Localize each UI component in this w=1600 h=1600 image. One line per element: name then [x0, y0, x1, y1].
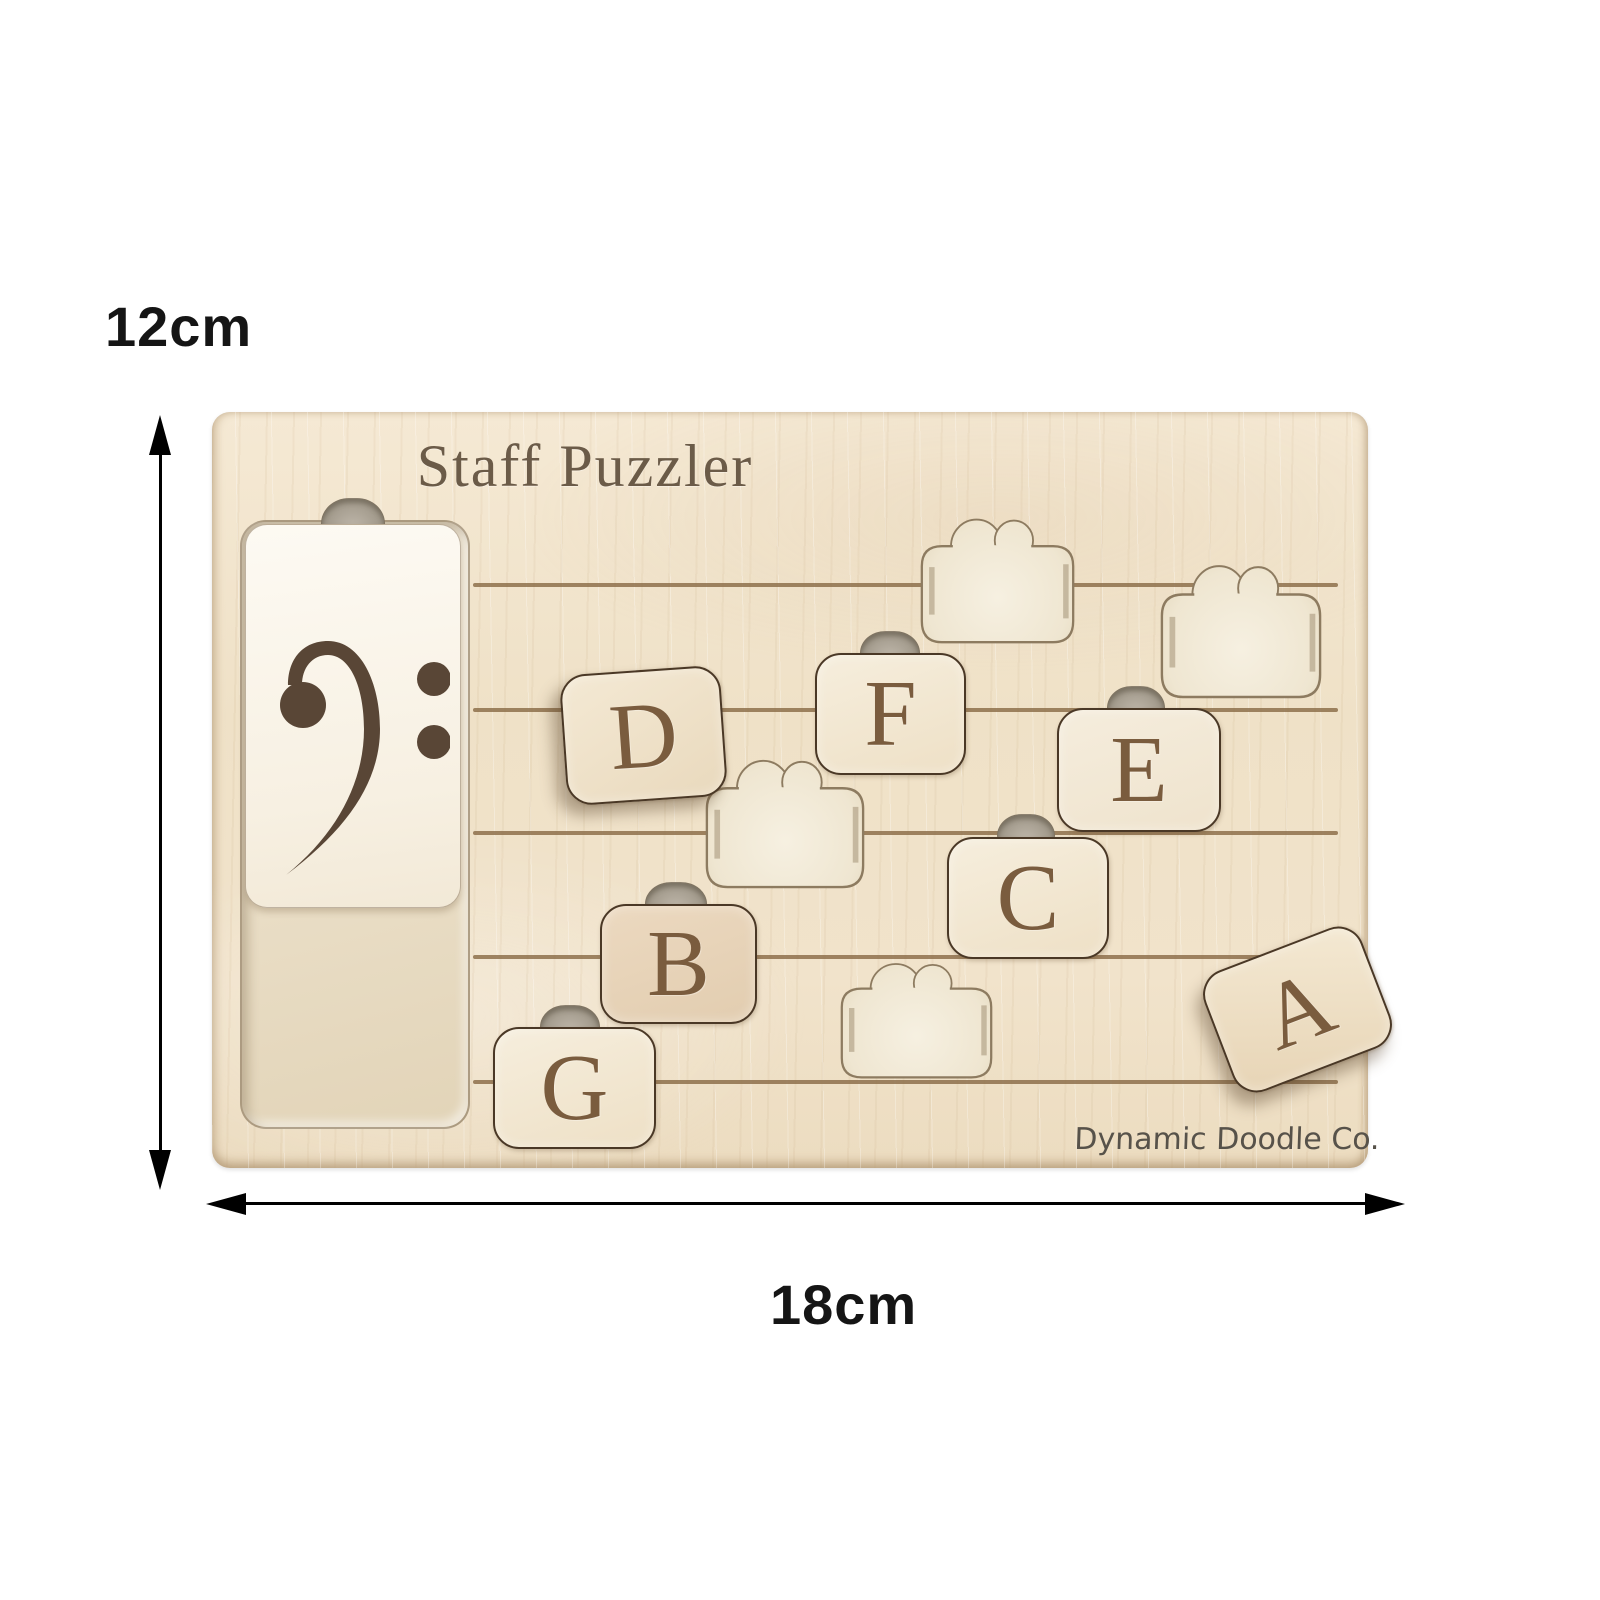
tile-G: G: [493, 1027, 656, 1149]
tile-D: D: [559, 665, 729, 807]
staff-line-3: [473, 831, 1338, 835]
tile-letter: B: [647, 917, 710, 1011]
bass-clef-icon: [258, 629, 450, 878]
tile-letter: C: [997, 851, 1060, 945]
arrow-down-icon: [149, 1150, 171, 1190]
vertical-arrow-line: [159, 450, 162, 1155]
tile-F: F: [815, 653, 966, 775]
arrow-up-icon: [149, 415, 171, 455]
arrow-right-icon: [1365, 1193, 1405, 1215]
tile-letter: E: [1110, 723, 1167, 817]
brand-text: Dynamic Doodle Co.: [1071, 1122, 1382, 1157]
horizontal-arrow-line: [242, 1202, 1367, 1205]
tile-B: B: [600, 904, 757, 1024]
tile-letter: G: [541, 1041, 609, 1135]
empty-slot-1: [920, 512, 1075, 645]
product-photo: 12cm 18cm Staff Puzzler: [0, 0, 1600, 1600]
bass-clef-piece: [245, 524, 461, 908]
board-title: Staff Puzzler: [385, 432, 785, 501]
width-dimension-label: 18cm: [770, 1272, 917, 1337]
tile-letter: D: [606, 686, 680, 785]
arrow-left-icon: [206, 1193, 246, 1215]
tile-C: C: [947, 837, 1109, 959]
height-dimension-label: 12cm: [105, 294, 252, 359]
tile-E: E: [1057, 708, 1221, 832]
tile-letter: A: [1249, 953, 1346, 1065]
tile-letter: F: [864, 667, 916, 761]
empty-slot-4: [840, 957, 993, 1080]
empty-slot-2: [1160, 558, 1322, 700]
tile-A: A: [1195, 919, 1399, 1100]
puzzle-board: Staff Puzzler: [212, 412, 1368, 1168]
